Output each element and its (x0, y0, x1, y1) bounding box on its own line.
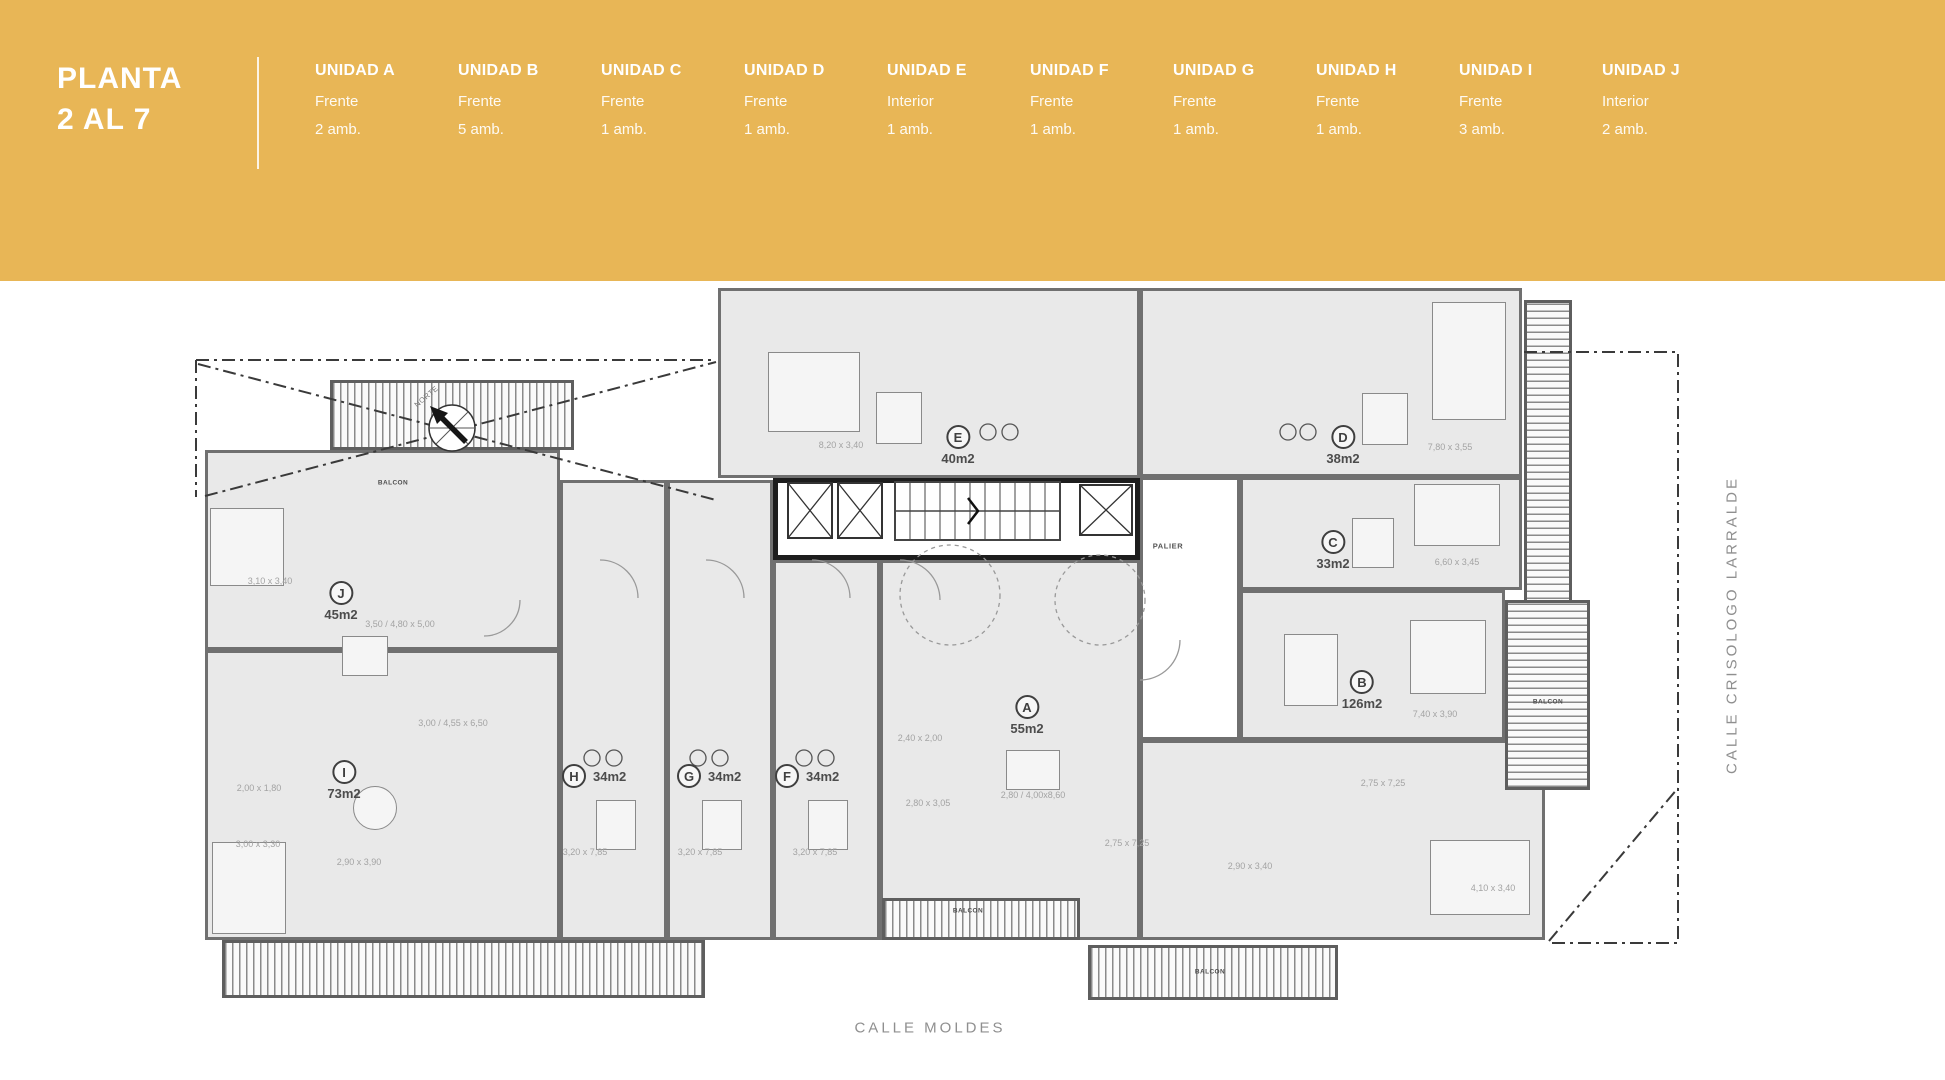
unit-area: 55m2 (1010, 721, 1043, 736)
dimension-label: 4,10 x 3,40 (1471, 883, 1516, 893)
palier-label: PALIER (1153, 542, 1184, 551)
unit-area: 40m2 (941, 451, 974, 466)
unit-area: 33m2 (1316, 556, 1349, 571)
dimension-label: 2,80 x 3,05 (906, 798, 951, 808)
street-label-calle-moldes: CALLE MOLDES (854, 1020, 1005, 1037)
unit-letter-badge: B (1350, 670, 1374, 694)
dimension-label: 3,20 x 7,85 (793, 847, 838, 857)
unit-area: 45m2 (324, 607, 357, 622)
stairs (895, 482, 1060, 540)
plan-label-unit-c: C 33m2 (1316, 530, 1349, 571)
dimension-label: 3,50 / 4,80 x 5,00 (365, 619, 435, 629)
plan-label-unit-i: I 73m2 (327, 760, 360, 801)
balcon-label: BALCON (378, 480, 408, 487)
dimension-label: 2,90 x 3,40 (1228, 861, 1273, 871)
dimension-label: 2,80 / 4,00x8,60 (1001, 790, 1066, 800)
plan-label-unit-a: A 55m2 (1010, 695, 1043, 736)
dimension-label: 2,40 x 2,00 (898, 733, 943, 743)
plan-label-unit-e: E 40m2 (941, 425, 974, 466)
unit-letter-badge: J (329, 581, 353, 605)
dimension-label: 3,00 / 4,55 x 6,50 (418, 718, 488, 728)
unit-letter-badge: A (1015, 695, 1039, 719)
unit-area: 34m2 (708, 769, 741, 784)
unit-area: 34m2 (593, 769, 626, 784)
plan-label-unit-h: H 34m2 (562, 764, 626, 788)
balcon-label: BALCON (1533, 699, 1563, 706)
property-boundary-lines (196, 352, 1678, 943)
unit-area: 38m2 (1326, 451, 1359, 466)
dimension-label: 2,75 x 7,25 (1361, 778, 1406, 788)
dimension-label: 3,20 x 7,85 (678, 847, 723, 857)
unit-letter-badge: F (775, 764, 799, 788)
unit-letter-badge: G (677, 764, 701, 788)
balcon-label: BALCON (953, 908, 983, 915)
unit-area: 73m2 (327, 786, 360, 801)
plan-label-unit-f: F 34m2 (775, 764, 839, 788)
brochure-page: PLANTA 2 AL 7 UNIDAD A Frente 2 amb. UNI… (0, 0, 1945, 1080)
plan-label-unit-g: G 34m2 (677, 764, 741, 788)
dimension-label: 8,20 x 3,40 (819, 440, 864, 450)
dimension-label: 2,75 x 7,25 (1105, 838, 1150, 848)
balcon-label: BALCON (1195, 969, 1225, 976)
kitchen-burner-circles (584, 424, 1316, 766)
unit-letter-badge: C (1321, 530, 1345, 554)
unit-letter-badge: H (562, 764, 586, 788)
unit-letter-badge: E (946, 425, 970, 449)
dimension-label: 3,20 x 7,85 (563, 847, 608, 857)
dimension-label: 2,00 x 1,80 (237, 783, 282, 793)
street-label-calle-crisologo-larralde: CALLE CRISOLOGO LARRALDE (1724, 476, 1741, 774)
plan-label-unit-d: D 38m2 (1326, 425, 1359, 466)
unit-letter-badge: D (1331, 425, 1355, 449)
dimension-label: 2,90 x 3,90 (337, 857, 382, 867)
unit-area: 126m2 (1342, 696, 1382, 711)
dimension-label: 7,40 x 3,90 (1413, 709, 1458, 719)
dimension-label: 7,80 x 3,55 (1428, 442, 1473, 452)
unit-area: 34m2 (806, 769, 839, 784)
plan-label-unit-b: B 126m2 (1342, 670, 1382, 711)
door-swing-arcs (484, 545, 1180, 680)
plan-label-unit-j: J 45m2 (324, 581, 357, 622)
compass-rose (429, 405, 475, 451)
dimension-label: 6,60 x 3,45 (1435, 557, 1480, 567)
dimension-label: 3,10 x 3,40 (248, 576, 293, 586)
dimension-label: 3,00 x 3,30 (236, 839, 281, 849)
unit-letter-badge: I (332, 760, 356, 784)
plan-linework (0, 0, 1945, 1080)
